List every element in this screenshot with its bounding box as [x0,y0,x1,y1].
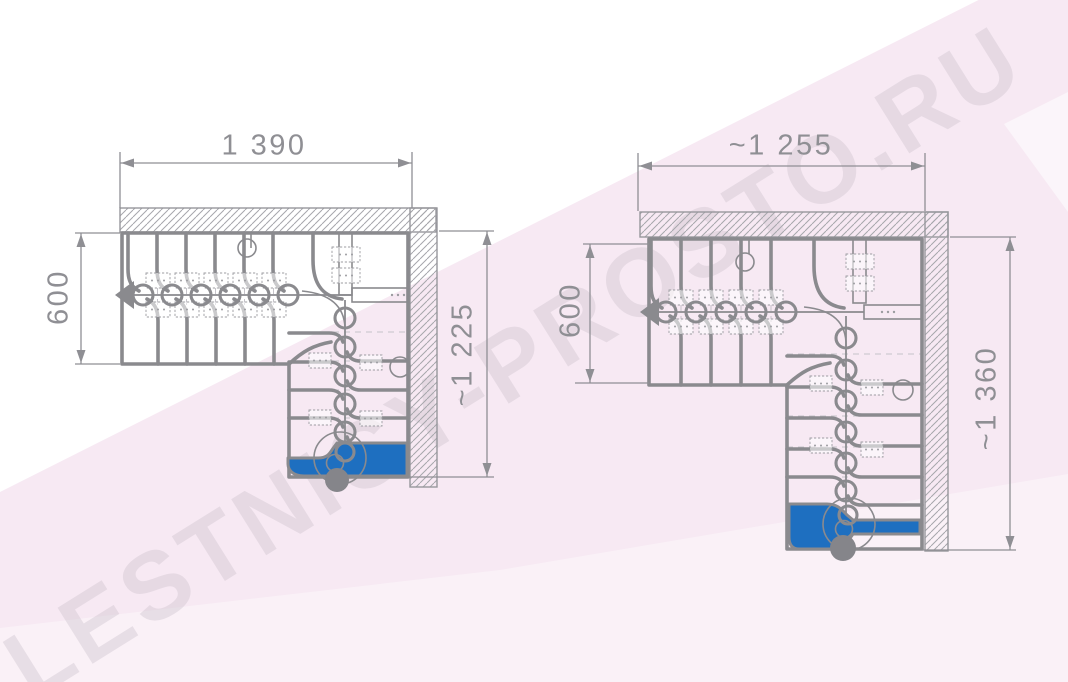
dimension-arrow-icon [77,350,86,363]
dimension-arrow-icon [398,159,411,168]
wall-hatch-right [410,208,437,487]
dimension-arrow-icon [586,369,595,382]
wall-beam-horizontal [352,288,408,302]
dimension-label-left-height: ~1 225 [447,302,480,407]
dimension-arrow-icon [1006,536,1015,549]
dimension-arrow-icon [911,162,924,171]
handrail-fitting-icon [736,253,754,271]
right-staircase-drawing [575,153,1016,561]
wall-hatch-top [640,212,948,237]
dimension-arrow-icon [77,234,86,247]
walkline-arrow-icon [115,281,134,309]
dimension-label-right-top: ~1 255 [729,130,834,163]
dimension-label-left-width: 600 [43,269,76,325]
dimension-arrow-icon [1006,238,1015,251]
dimension-arrow-icon [586,245,595,258]
corner-beam-vertical [853,239,866,303]
support-post [830,535,856,561]
handrail-fitting-icon [238,239,256,257]
dimension-arrow-icon [121,159,134,168]
dimension-label-right-height: ~1 360 [971,346,1004,451]
dimension-arrow-icon [483,463,492,476]
left-staircase-drawing [75,152,494,492]
technical-drawing-layer [0,0,1068,682]
dimension-arrow-icon [483,232,492,245]
corner-beam-vertical [339,233,352,295]
staircase-plans-canvas: LESTNICY-PROSTO.RU 1 390 600 ~1 225 ~1 2… [0,0,1068,682]
support-post [325,468,349,492]
wall-hatch-right [925,212,948,551]
dimension-arrow-icon [639,162,652,171]
wall-hatch-top [120,208,436,232]
dimension-label-left-top: 1 390 [221,130,306,163]
dimension-label-right-width: 600 [555,282,588,338]
